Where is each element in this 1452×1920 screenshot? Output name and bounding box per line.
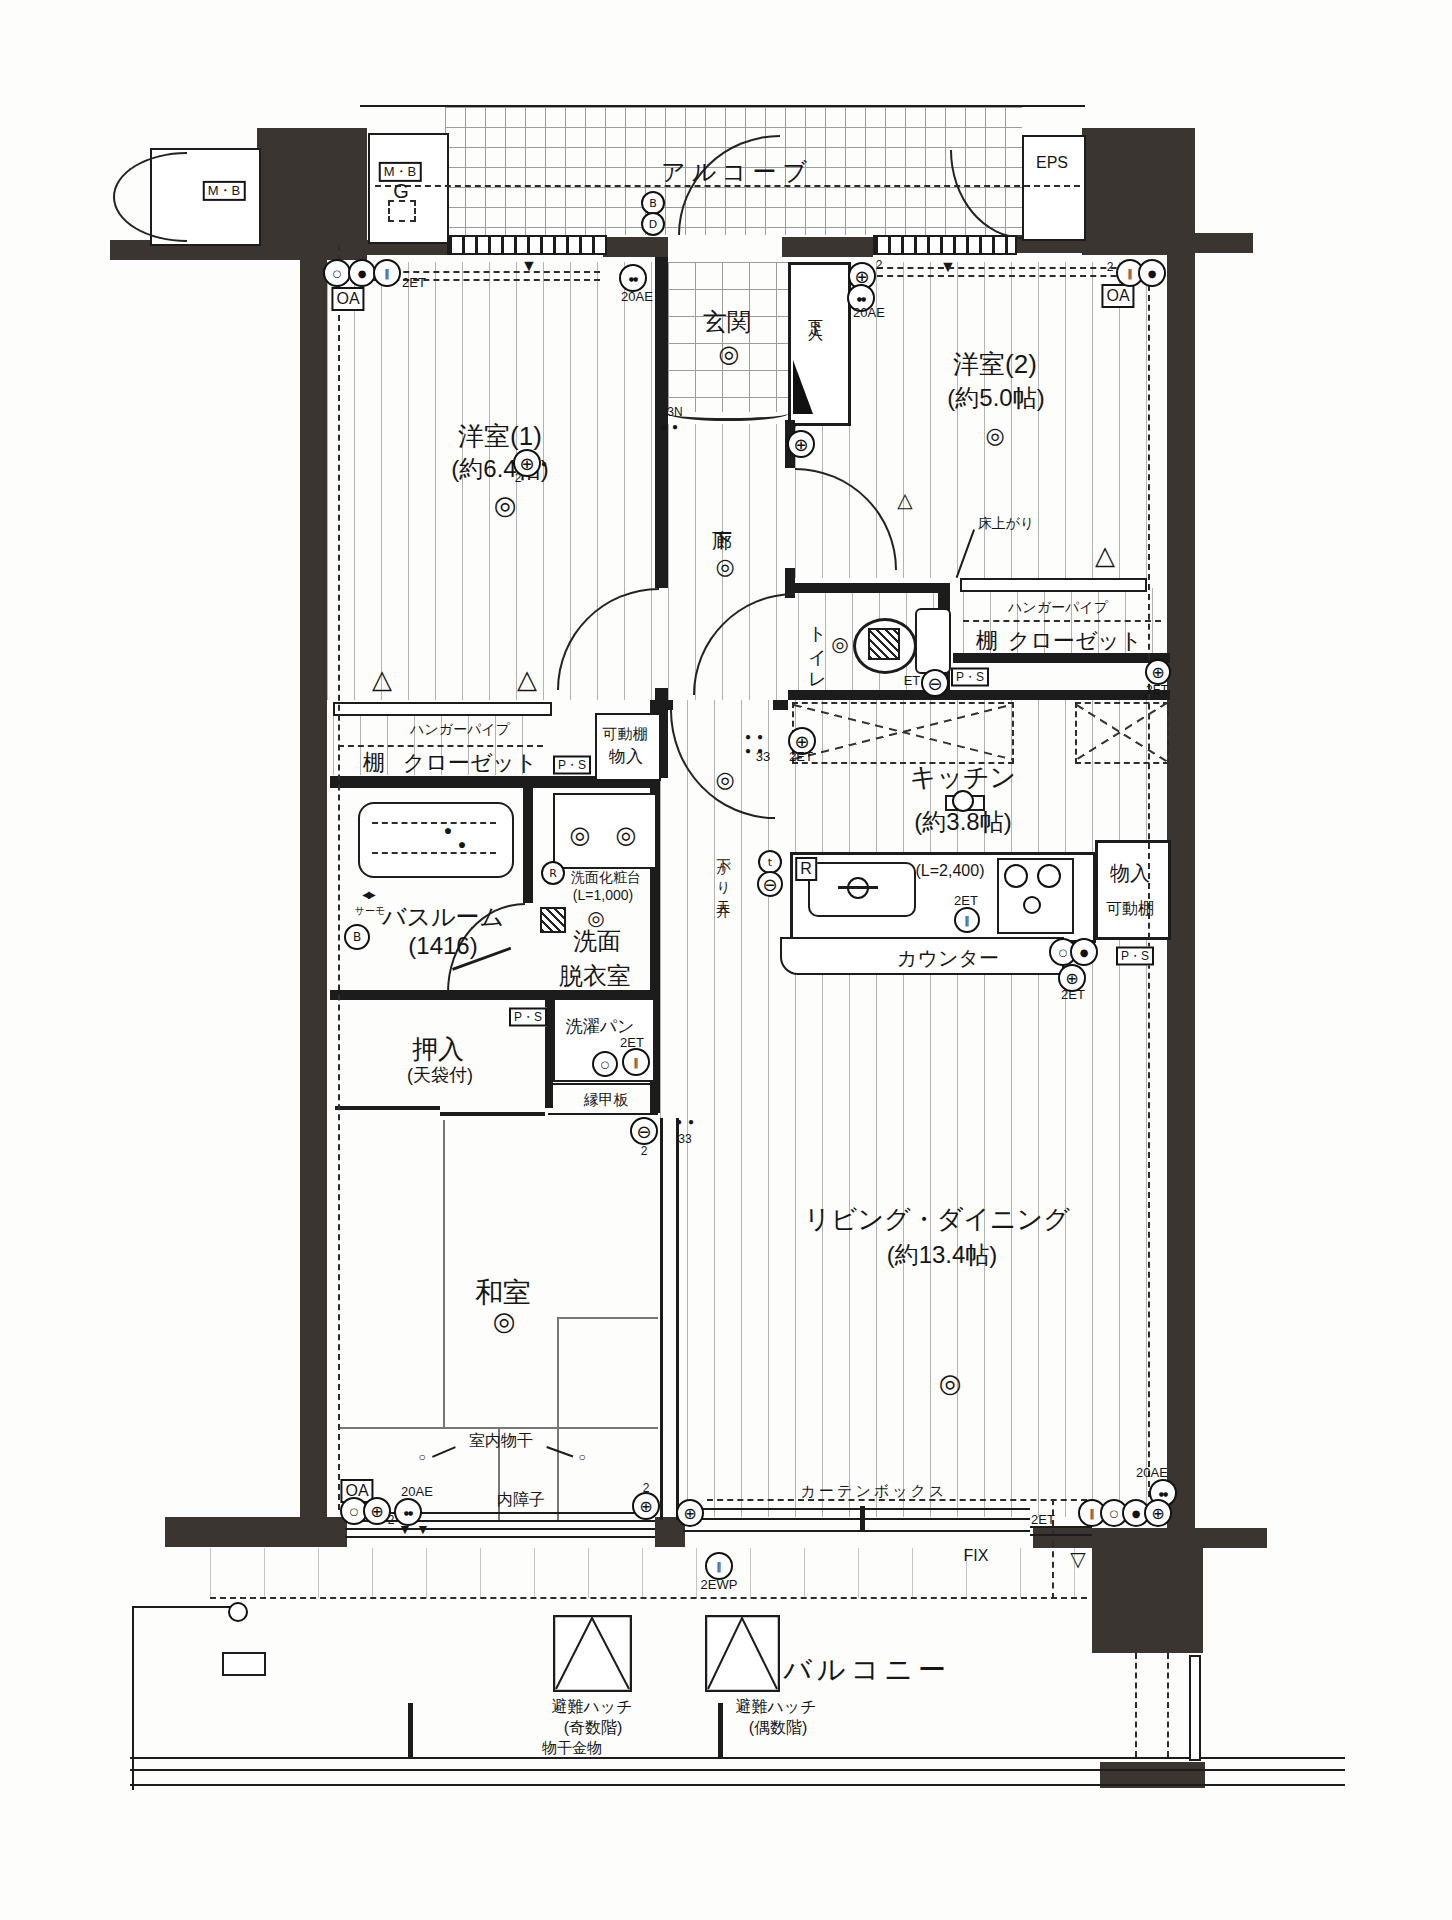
living-window-l3 (683, 1530, 1030, 1532)
washitsu-sliding-door-a (660, 1118, 663, 1520)
western2-ceiling-dashed-b (877, 275, 1147, 277)
sink-faucet-bar (838, 886, 878, 889)
hatch-even-note: (偶数階) (749, 1719, 808, 1737)
shower-icon: ◀▶ (362, 889, 373, 901)
genkan-tile-floor (668, 262, 788, 412)
western2-top-window (873, 235, 1017, 255)
washitsu-sliding-door-b (676, 1118, 679, 1520)
tatami-line-v1 (443, 1120, 445, 1427)
lowered-ceiling-label: 下がり天井 (716, 849, 732, 896)
wall-top-seg1 (603, 237, 668, 257)
switch-circle: ⊖ (921, 669, 949, 697)
closet2-shelf-dashed (963, 620, 1161, 622)
ae20-label: 20AE (853, 306, 885, 321)
drying-pole-post-left (408, 1703, 413, 1759)
escape-hatch-even (705, 1615, 780, 1692)
wall-toilet-top (788, 583, 950, 593)
wall-bath-wash-divider (523, 788, 533, 903)
drying-pole-post-right (718, 1703, 723, 1759)
eps-label: EPS (1036, 154, 1068, 172)
counter-label: カウンター (897, 947, 999, 970)
wall-left (300, 240, 327, 1525)
bath-b-circle: B (344, 924, 370, 950)
outlet-circle: ● (348, 259, 376, 287)
kitchen-size-label: (約3.8帖) (914, 808, 1011, 836)
outlet-circle: ‖ (954, 907, 980, 933)
drying-hardware-label: 物干金物 (542, 1739, 602, 1756)
closet2-hanger-pipe (960, 578, 1147, 592)
balcony-left-edge-v (132, 1607, 134, 1790)
hatch-odd-label: 避難ハッチ (551, 1698, 632, 1716)
corner-vent-icon: ▽ (1070, 1548, 1085, 1571)
hanger-support-icon: △ (897, 489, 912, 512)
vanity-length-label: (L=1,000) (573, 887, 633, 903)
hallway-label: 廊下 (711, 513, 734, 519)
closet2-hanger-label: ハンガーパイプ (1008, 599, 1108, 615)
stove-burner-icon (1023, 896, 1041, 914)
two-label: 2 (790, 422, 797, 436)
dot-mark: ● (661, 421, 667, 433)
bathroom-label: バスルーム (382, 903, 504, 931)
left-eave-dashed (338, 245, 340, 1510)
drying-hook-icon: ○ (578, 1451, 585, 1465)
curtain-box-label: カーテンボックス (801, 1482, 947, 1499)
vanity-bowl-icon: ◎ (616, 821, 637, 849)
outlet-circle: ⊕ (676, 1499, 704, 1527)
shoe-cabinet-wedge (791, 358, 815, 416)
closet1-shelf-dashed (338, 745, 543, 747)
toilet-cistern (915, 608, 951, 674)
fix-label: FIX (964, 1547, 989, 1565)
hallway-marker: ◎ (715, 554, 734, 579)
hanger-support-icon: △ (372, 665, 392, 695)
washroom-label-2: 脱衣室 (559, 962, 631, 990)
washitsu-label: 和室 (475, 1277, 531, 1309)
toilet-marker: ◎ (831, 633, 848, 656)
balcony-left-edge-h (132, 1606, 232, 1608)
et2-label: 2ET (1061, 988, 1085, 1003)
ps-box: P・S (553, 756, 591, 775)
g33-label: 33 (756, 750, 770, 765)
counter-length-label: (L=2,400) (916, 862, 985, 880)
hatch-even-label: 避難ハッチ (735, 1698, 816, 1716)
dot-mark: ● (688, 1116, 694, 1128)
living-label: リビング・ダイニング (804, 1205, 1069, 1235)
wall-top-seg2 (782, 237, 873, 257)
outlet-circle: ⊕ (1145, 659, 1171, 685)
wall-bottom-right-block (1092, 1548, 1203, 1653)
wall-toilet-bottom (788, 690, 1170, 700)
vanity-bowl-icon: ◎ (570, 821, 591, 849)
balcony-right-dashed-a (1135, 1653, 1137, 1757)
escape-hatch-odd (553, 1615, 632, 1692)
kitchen-storage-label: 物入 (1110, 862, 1150, 885)
inner-shoji-label: 内障子 (497, 1491, 545, 1509)
dot-mark: ● (541, 458, 547, 470)
drying-leader-left (432, 1446, 456, 1458)
et-label: ET (904, 674, 921, 689)
balcony-eave-dashed (210, 1597, 1087, 1599)
bathtub-drain-icon: ● (444, 822, 452, 838)
vanity-label: 洗面化粧台 (571, 869, 641, 885)
shoe-box-label: 下足入 (807, 308, 824, 317)
wall-top-right-ext (1195, 233, 1253, 253)
indoor-drying-label: 室内物干 (469, 1432, 533, 1450)
bathroom-size-label: (1416) (408, 932, 477, 960)
washitsu-window-l3 (345, 1536, 655, 1538)
toilet-label: トイレ (807, 613, 828, 683)
washroom-hatch-square (540, 907, 566, 933)
wall-bottom-left (165, 1517, 330, 1547)
drying-leader-right (546, 1446, 573, 1457)
washitsu-marker: ◎ (493, 1307, 516, 1337)
tatami-line-v2 (557, 1317, 559, 1520)
wall-kitchen-door-stub-right (773, 700, 788, 710)
oa-box: OA (1101, 284, 1134, 308)
washroom-label-1: 洗面 (573, 927, 621, 955)
hatch-odd-note: (奇数階) (564, 1719, 623, 1737)
living-window-l1 (683, 1508, 1030, 1510)
et2-label: 2ET (402, 276, 426, 291)
outlet-circle: ●● (394, 1498, 422, 1526)
faucet-circle: ○ (592, 1051, 618, 1077)
dot-mark: ● (676, 1116, 682, 1128)
switch-circle: ⊖ (630, 1117, 658, 1145)
g33-label: 33 (678, 1133, 691, 1147)
outlet-circle: ‖ (373, 259, 401, 287)
vanity-r-circle: R (541, 861, 565, 885)
oa-box: OA (331, 287, 364, 311)
oshiire-label: 押入 (412, 1035, 464, 1065)
et2-label: 2ET (1031, 1513, 1055, 1528)
living-window-mullion (860, 1506, 865, 1532)
washitsu-window-l2 (345, 1528, 655, 1530)
dot-mark: ● (672, 421, 678, 433)
alcove-top-line (360, 105, 1085, 107)
two-label: 2 (388, 1514, 395, 1528)
engawa-label: 縁甲板 (584, 1091, 629, 1108)
meter-box-label: M・B (203, 181, 246, 201)
ae20-label: 20AE (621, 290, 653, 305)
balcony-right-bar (1189, 1655, 1201, 1761)
gas-meter-label: G (393, 180, 409, 203)
storage-label: 物入 (609, 747, 643, 767)
dot-mark: ● (745, 731, 751, 743)
oshiire-sliding-door-a (335, 1106, 440, 1110)
dot-mark: ● (757, 731, 763, 743)
western2-label: 洋室(2) (953, 350, 1037, 380)
bathtub (358, 802, 514, 878)
et2-label: 2ET (1146, 684, 1168, 698)
western2-marker: ◎ (985, 423, 1004, 448)
ps-box: P・S (509, 1008, 547, 1027)
kitchen-label: キッチン (910, 763, 1016, 793)
engawa-top-line (548, 1083, 658, 1085)
stove-burner-icon (1004, 864, 1028, 888)
closet1-label: クローゼット (403, 750, 538, 775)
hanger-support-icon: △ (517, 665, 537, 695)
wall-kitchen-door-stub-left (660, 700, 673, 710)
western1-top-window (447, 235, 607, 255)
hallway-marker: ◎ (715, 767, 734, 792)
western2-size-label: (約5.0帖) (947, 384, 1044, 412)
ewp2-label: 2EWP (701, 1578, 738, 1593)
balcony-post-circle (228, 1602, 248, 1622)
outlet-circle: ● (1138, 259, 1166, 287)
closet2-bottom-wall (953, 653, 1170, 663)
oshiire-sliding-door-b (440, 1112, 545, 1116)
balcony-rail-2 (130, 1769, 1345, 1771)
kitchen-storage-box (1095, 840, 1171, 940)
alcove-label: アルコーブ (661, 158, 813, 186)
genkan-step-curve (668, 406, 788, 421)
outlet-circle: ⊕ (1144, 1499, 1172, 1527)
hanger-support-icon: △ (1095, 541, 1115, 571)
engawa-bottom-line (548, 1113, 658, 1115)
outlet-circle: ○ (323, 259, 351, 287)
oshiire-note-label: (天袋付) (407, 1065, 473, 1086)
thermo-label: サーモ (355, 905, 385, 917)
balcony-floor (210, 1548, 1087, 1598)
floor-raised-label: 床上がり (978, 515, 1035, 531)
closet2-label: クローゼット (1008, 628, 1143, 653)
storage-shelf-label: 可動棚 (603, 725, 648, 742)
eps-room (1022, 135, 1086, 241)
living-window-l2 (683, 1518, 1030, 1520)
two-label: 2 (1107, 261, 1114, 275)
balcony-right-dashed-b (1167, 1653, 1169, 1757)
bathtub-line2 (372, 852, 496, 854)
wall-top-right-block (1082, 128, 1195, 255)
kitchen-storage-shelf-label: 可動棚 (1106, 900, 1154, 918)
balcony-left-step (222, 1652, 266, 1676)
western1-marker: ◎ (494, 491, 517, 521)
n3-label: 3N (667, 406, 682, 420)
closet2-shelf-label: 棚 (976, 628, 998, 653)
window-vent-icon: ▼ (416, 1521, 430, 1537)
stove-burner-icon (1037, 864, 1061, 888)
washroom-marker: ◎ (587, 907, 604, 930)
bathtub-line1 (372, 822, 496, 824)
balcony-rail-3 (130, 1784, 1345, 1786)
genkan-marker: ◎ (719, 340, 740, 368)
counter-r-box: R (795, 857, 817, 881)
dot-mark: ● (745, 745, 751, 757)
entry-door-arc-left (113, 152, 187, 242)
outlet-circle: ● (1070, 938, 1098, 966)
wall-right (1167, 253, 1195, 1528)
two-label: 2 (515, 472, 522, 486)
two-label: 2 (641, 1145, 648, 1159)
wall-bottom-right-band (1033, 1528, 1267, 1548)
bathtub-drain-icon: ● (458, 836, 466, 852)
genkan-label: 玄関 (703, 308, 751, 336)
ps-box: P・S (951, 668, 989, 687)
living-switch-circle: ⊖ (757, 871, 783, 897)
living-marker: ◎ (939, 1369, 962, 1399)
closet1-hanger-label: ハンガーパイプ (410, 721, 510, 737)
outlet-circle: ‖ (622, 1048, 650, 1076)
balcony-label: バルコニー (783, 1654, 951, 1686)
drying-hook-icon: ○ (418, 1451, 425, 1465)
ps-box: P・S (1116, 947, 1154, 966)
gas-dashed-box (388, 200, 416, 222)
living-size-label: (約13.4帖) (887, 1241, 998, 1269)
balcony-rail-1 (130, 1757, 1345, 1759)
tatami-line-h2 (557, 1317, 658, 1319)
toilet-bowl-hatch (868, 628, 900, 660)
et2-label: 2ET (789, 750, 813, 765)
closet1-shelf-label: 棚 (363, 750, 385, 775)
western1-label: 洋室(1) (458, 422, 542, 452)
two-label: 2 (876, 259, 883, 273)
closet1-hanger-pipe (333, 702, 552, 716)
outlet-circle: ⊕ (632, 1492, 660, 1520)
fix-window-l2 (1030, 1534, 1092, 1536)
alcove-d-circle: D (641, 212, 665, 236)
floor-plan: ▼ ▼ △ △ △ △ (0, 0, 1452, 1920)
